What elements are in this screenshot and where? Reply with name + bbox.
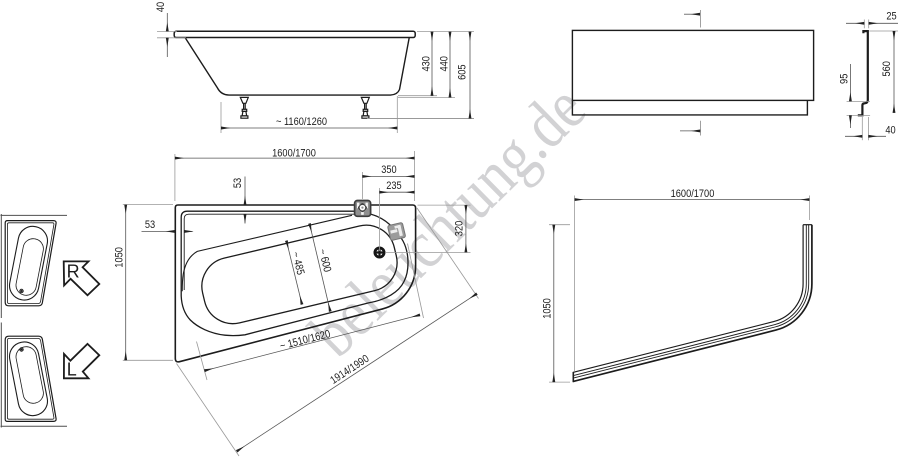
svg-text:~ 485: ~ 485 — [289, 251, 306, 277]
svg-text:53: 53 — [145, 219, 155, 231]
svg-text:1050: 1050 — [113, 247, 125, 268]
svg-text:25: 25 — [886, 11, 896, 23]
svg-text:350: 350 — [381, 164, 396, 176]
svg-text:40: 40 — [155, 2, 167, 12]
svg-text:R: R — [67, 262, 80, 282]
svg-text:1600/1700: 1600/1700 — [671, 188, 715, 200]
svg-text:235: 235 — [386, 180, 401, 192]
svg-text:~ 1160/1260: ~ 1160/1260 — [276, 116, 327, 128]
svg-text:320: 320 — [454, 221, 466, 236]
svg-text:L: L — [67, 360, 77, 380]
svg-text:40: 40 — [885, 125, 895, 137]
svg-text:440: 440 — [439, 56, 451, 71]
svg-text:1050: 1050 — [542, 298, 554, 319]
svg-text:560: 560 — [881, 61, 893, 76]
svg-text:430: 430 — [421, 56, 433, 71]
svg-text:95: 95 — [839, 74, 851, 84]
svg-text:~ 600: ~ 600 — [316, 248, 333, 274]
svg-text:~ 1510/1620: ~ 1510/1620 — [279, 328, 332, 352]
svg-text:53: 53 — [232, 178, 244, 188]
svg-text:1600/1700: 1600/1700 — [272, 148, 316, 160]
svg-text:605: 605 — [457, 65, 469, 80]
